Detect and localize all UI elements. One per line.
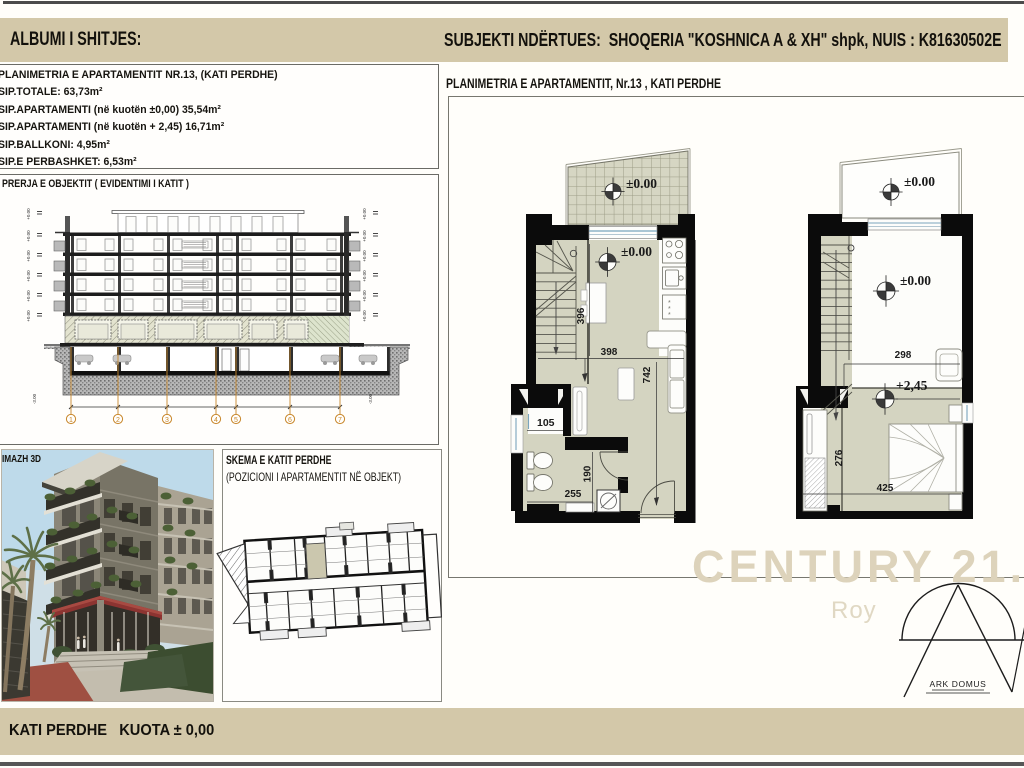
svg-text:+0.00: +0.00 (362, 310, 367, 322)
svg-text:+0.00: +0.00 (362, 230, 367, 242)
svg-text:425: 425 (877, 483, 894, 494)
svg-text:±0.00: ±0.00 (904, 174, 935, 189)
svg-text:+0.00: +0.00 (362, 208, 367, 220)
svg-text:2: 2 (116, 417, 120, 424)
svg-text:190: 190 (583, 465, 594, 482)
svg-text:-3.00: -3.00 (32, 393, 37, 404)
svg-text:+0.00: +0.00 (26, 208, 31, 220)
svg-text:276: 276 (834, 449, 845, 466)
svg-text:+0.00: +0.00 (26, 290, 31, 302)
svg-text:+0.00: +0.00 (26, 310, 31, 322)
svg-text:298: 298 (895, 350, 912, 361)
svg-text:396: 396 (576, 307, 587, 324)
svg-text:ARK DOMUS: ARK DOMUS (930, 679, 987, 689)
svg-text:105: 105 (537, 417, 555, 429)
svg-text:+0.00: +0.00 (362, 270, 367, 282)
svg-text:5: 5 (234, 417, 238, 424)
svg-text:7: 7 (338, 417, 342, 424)
svg-text:4: 4 (214, 417, 218, 424)
svg-text:742: 742 (642, 366, 653, 383)
svg-text:*: * (668, 312, 671, 319)
svg-text:+0.00: +0.00 (26, 230, 31, 242)
svg-text:6: 6 (288, 417, 292, 424)
svg-text:-3.00: -3.00 (368, 393, 373, 404)
svg-text:1: 1 (69, 417, 73, 424)
svg-text:+0.00: +0.00 (362, 290, 367, 302)
svg-text:398: 398 (601, 347, 618, 358)
svg-text:3: 3 (165, 417, 169, 424)
svg-text:+0.00: +0.00 (26, 250, 31, 262)
svg-text:±0.00: ±0.00 (621, 244, 652, 259)
svg-text:±0.00: ±0.00 (626, 176, 657, 191)
svg-text:±0.00: ±0.00 (900, 273, 931, 288)
svg-text:255: 255 (565, 489, 582, 500)
svg-text:+2,45: +2,45 (896, 378, 928, 393)
svg-text:+0.00: +0.00 (362, 250, 367, 262)
svg-text:+0.00: +0.00 (26, 270, 31, 282)
